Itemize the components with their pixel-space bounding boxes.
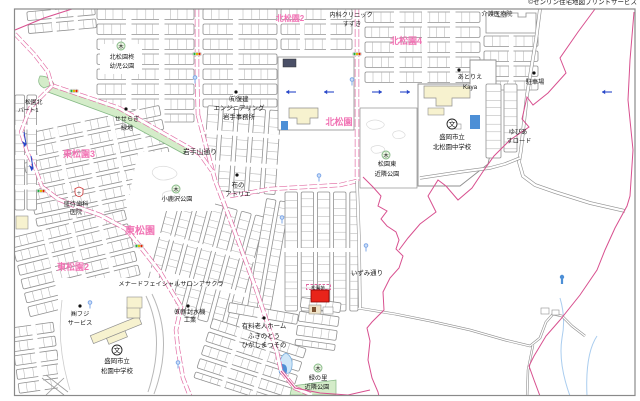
svg-text:近隣公園: 近隣公園 bbox=[375, 170, 400, 178]
svg-text:松園東: 松園東 bbox=[378, 160, 397, 168]
svg-text:㈲新封水機: ㈲新封水機 bbox=[175, 308, 206, 316]
svg-text:㈲復建: ㈲復建 bbox=[229, 94, 249, 103]
svg-text:北松園4: 北松園4 bbox=[390, 35, 422, 46]
svg-text:アトリエ: アトリエ bbox=[225, 190, 251, 198]
svg-text:東松園3: 東松園3 bbox=[63, 148, 95, 159]
svg-text:エンジニアリング: エンジニアリング bbox=[213, 103, 265, 112]
svg-text:ひがしまつその: ひがしまつその bbox=[242, 340, 287, 349]
svg-text:木: 木 bbox=[383, 151, 389, 159]
svg-text:岩手事務所: 岩手事務所 bbox=[223, 112, 256, 121]
svg-text:緑地: 緑地 bbox=[121, 124, 133, 132]
svg-text:文: 文 bbox=[114, 346, 121, 355]
svg-text:いずみ通り: いずみ通り bbox=[351, 268, 383, 277]
svg-text:盛岡市立: 盛岡市立 bbox=[439, 132, 465, 141]
svg-text:工業: 工業 bbox=[184, 316, 196, 324]
svg-text:ゆぴあ: ゆぴあ bbox=[509, 129, 528, 136]
svg-text:有料老人ホーム: 有料老人ホーム bbox=[242, 321, 287, 330]
svg-text:松園中学校: 松園中学校 bbox=[101, 366, 134, 375]
svg-text:㈱フジ: ㈱フジ bbox=[71, 310, 90, 318]
svg-text:内科クリニック: 内科クリニック bbox=[329, 11, 372, 19]
svg-text:医院: 医院 bbox=[70, 208, 82, 216]
svg-text:Kaya: Kaya bbox=[463, 84, 478, 91]
svg-text:十: 十 bbox=[77, 190, 81, 197]
svg-text:木: 木 bbox=[315, 364, 321, 372]
svg-text:すロード: すロード bbox=[507, 138, 532, 145]
svg-text:北松園: 北松園 bbox=[325, 116, 352, 127]
svg-text:岩手山通り: 岩手山通り bbox=[183, 147, 217, 156]
svg-text:文: 文 bbox=[449, 120, 456, 129]
svg-text:緑の里: 緑の里 bbox=[309, 374, 328, 382]
svg-text:北松園柊: 北松園柊 bbox=[110, 53, 136, 61]
svg-text:東松園: 東松園 bbox=[125, 224, 155, 237]
svg-text:北松園2: 北松園2 bbox=[276, 13, 305, 23]
svg-text:近隣公園: 近隣公園 bbox=[305, 383, 330, 391]
svg-text:木: 木 bbox=[118, 42, 124, 50]
svg-text:©ゼンリン住宅地図プリントサービス: ©ゼンリン住宅地図プリントサービス bbox=[528, 0, 637, 6]
svg-text:盛岡市立: 盛岡市立 bbox=[104, 356, 130, 365]
svg-text:駐車場: 駐車場 bbox=[526, 78, 545, 86]
svg-text:サービス: サービス bbox=[68, 319, 93, 327]
svg-text:布の: 布の bbox=[232, 180, 245, 189]
svg-text:あとりえ: あとりえ bbox=[458, 74, 483, 81]
svg-text:東松園2: 東松園2 bbox=[57, 261, 89, 272]
svg-text:介護医療院: 介護医療院 bbox=[482, 10, 513, 18]
svg-text:盛待歯科: 盛待歯科 bbox=[64, 200, 89, 208]
svg-text:幼児公園: 幼児公園 bbox=[110, 62, 135, 70]
svg-text:木: 木 bbox=[173, 185, 179, 193]
svg-text:ふきのとう: ふきのとう bbox=[248, 332, 280, 340]
svg-text:メナードフェイシャルサロンアサクラ: メナードフェイシャルサロンアサクラ bbox=[118, 281, 223, 288]
svg-text:せせらぎ: せせらぎ bbox=[115, 115, 140, 123]
svg-text:小鹿沢公園: 小鹿沢公園 bbox=[162, 195, 193, 203]
svg-text:松園北: 松園北 bbox=[25, 98, 43, 106]
svg-text:パート1: パート1 bbox=[18, 107, 39, 114]
svg-text:すずき: すずき bbox=[343, 20, 362, 28]
svg-text:北松園中学校: 北松園中学校 bbox=[433, 142, 472, 151]
